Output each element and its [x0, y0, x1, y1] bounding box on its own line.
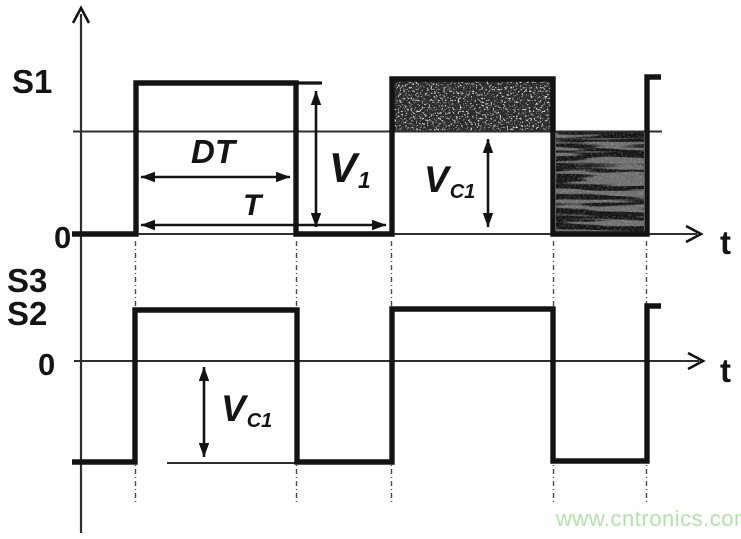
vc1-bottom-label: VC1: [221, 390, 272, 427]
watermark-text: www.cntronics.com: [556, 508, 741, 530]
waveform-drawing: [0, 0, 741, 539]
origin-label-top: 0: [54, 222, 71, 253]
vc1-top-label-base: V: [424, 159, 449, 200]
vc1-top-label: VC1: [424, 161, 475, 198]
t-period-label: T: [243, 191, 261, 221]
vc1-bottom-label-subscript: C1: [247, 410, 273, 432]
s1-axis-label: S1: [12, 65, 52, 98]
origin-label-bottom: 0: [38, 349, 55, 380]
shaded-area-below-vc1: [556, 131, 644, 233]
time-label-bottom: t: [720, 354, 731, 387]
vertical-axis: [73, 8, 89, 533]
s2-axis-label: S2: [7, 297, 47, 330]
s2-s3-waveform: [72, 306, 661, 462]
dt-label: DT: [191, 135, 235, 168]
vc1-bottom-label-base: V: [221, 388, 246, 429]
waveform-figure: S1 0 t DT T V1 VC1 S3 S2 0 t VC1 www.cnt…: [0, 0, 741, 539]
time-label-top: t: [720, 226, 731, 259]
time-axis-bottom: [74, 353, 703, 369]
vc1-top-label-subscript: C1: [450, 181, 476, 203]
v1-label: V1: [329, 147, 371, 189]
shaded-area-above-vc1: [394, 81, 551, 132]
v1-label-subscript: 1: [358, 167, 371, 193]
v1-label-base: V: [329, 144, 357, 191]
s3-axis-label: S3: [7, 264, 47, 297]
